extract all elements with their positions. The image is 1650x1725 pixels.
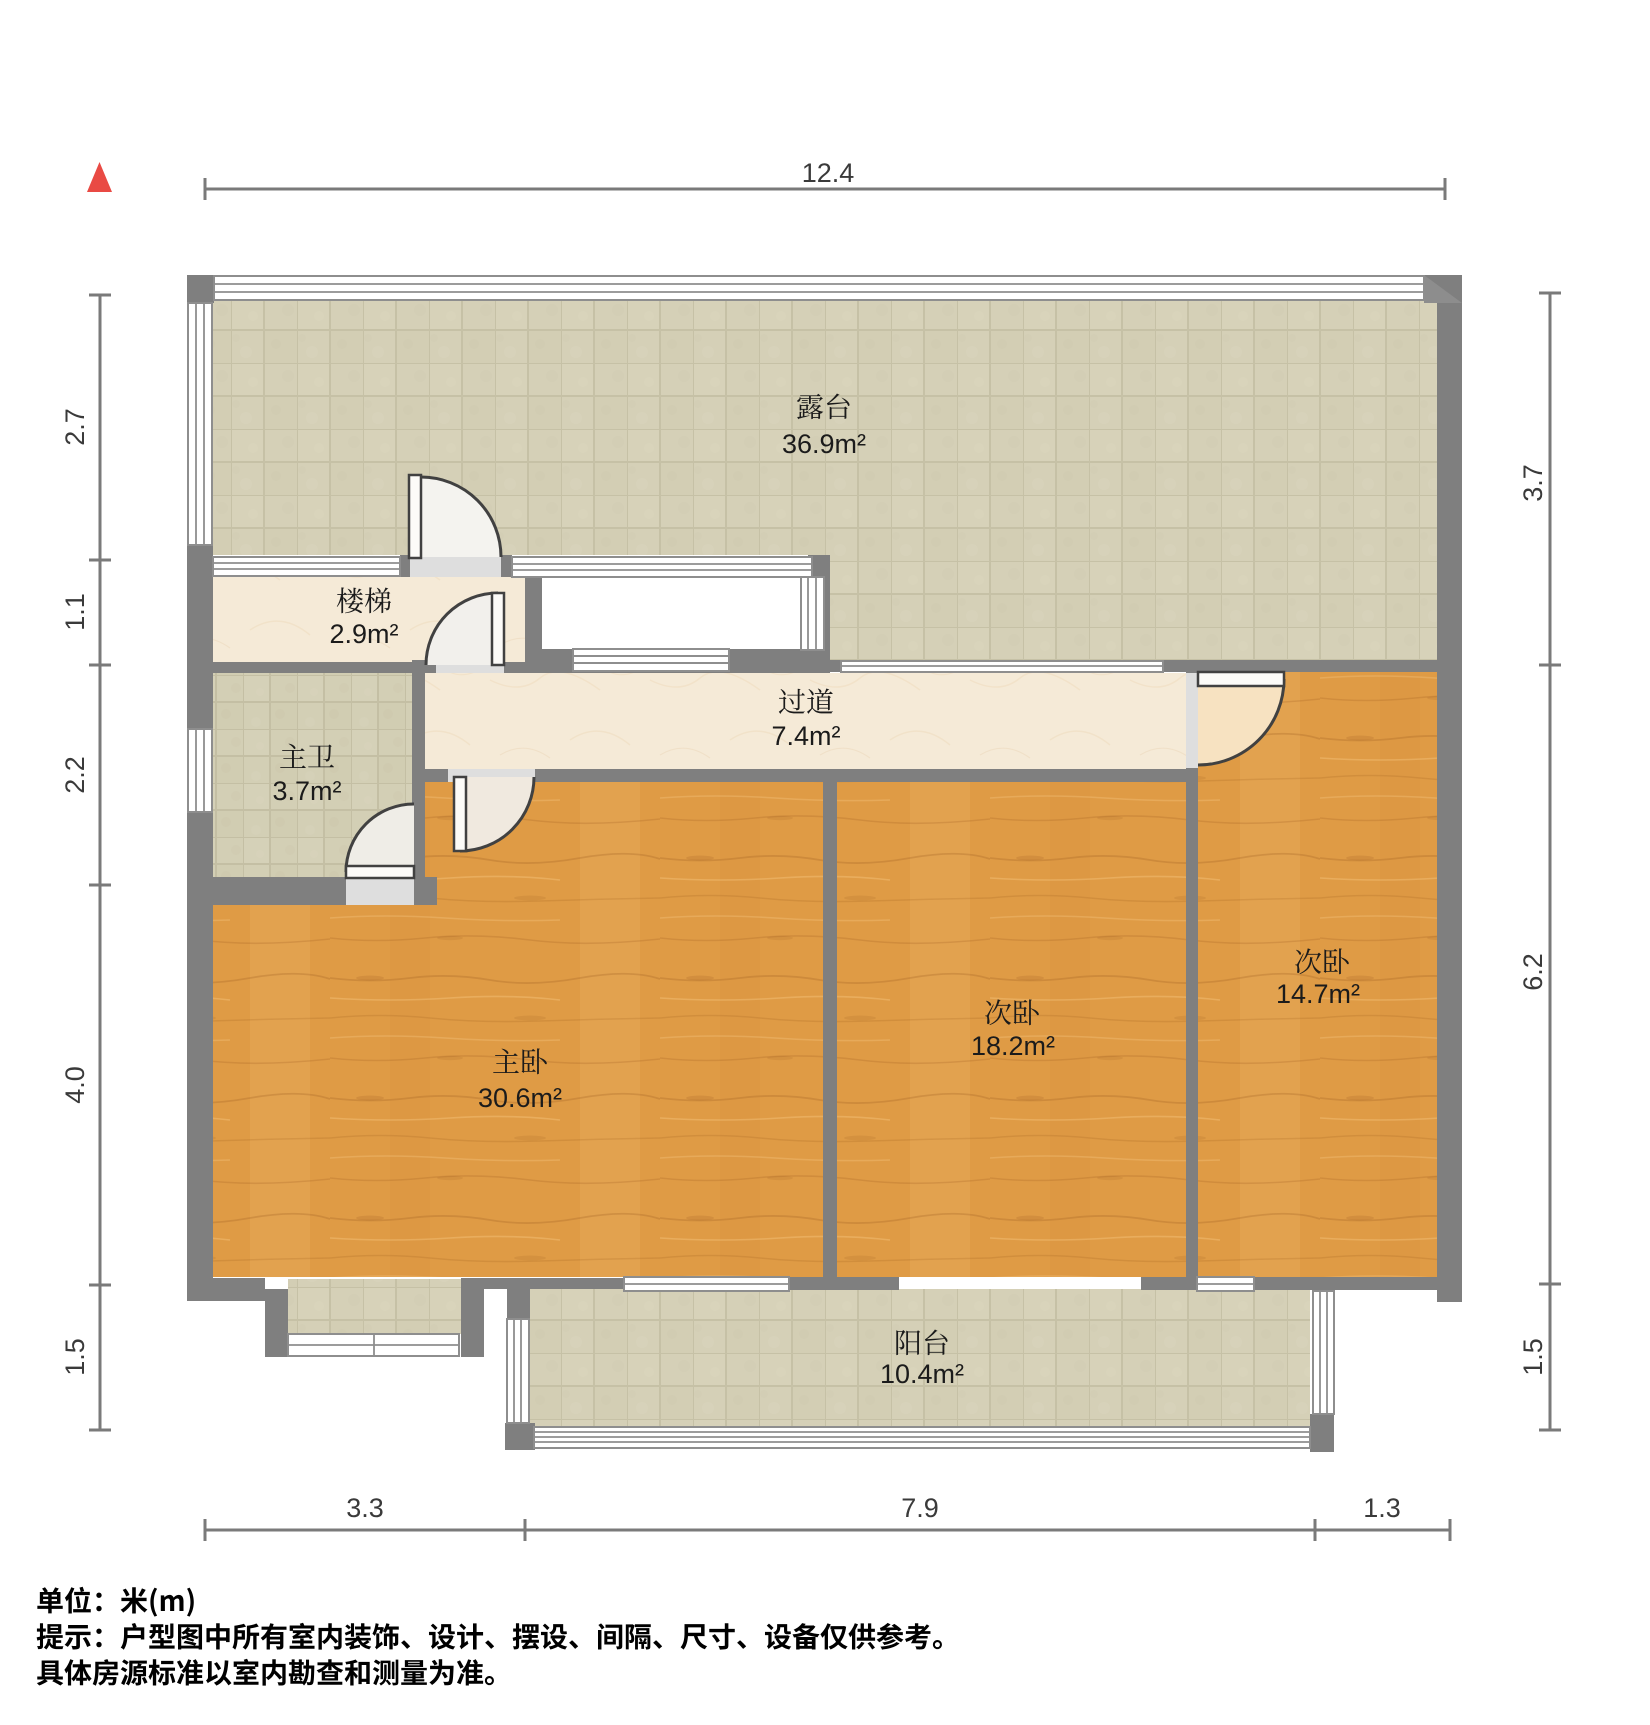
svg-text:12.4: 12.4 <box>802 158 855 188</box>
svg-text:2.9m²: 2.9m² <box>329 619 398 649</box>
svg-text:1.5: 1.5 <box>1518 1338 1548 1376</box>
svg-text:3.7m²: 3.7m² <box>272 776 341 806</box>
svg-text:1.5: 1.5 <box>60 1338 90 1376</box>
svg-text:6.2: 6.2 <box>1518 953 1548 991</box>
svg-text:3.7: 3.7 <box>1518 464 1548 502</box>
svg-text:1.1: 1.1 <box>60 593 90 631</box>
svg-text:36.9m²: 36.9m² <box>782 429 866 459</box>
svg-text:2.2: 2.2 <box>60 756 90 794</box>
svg-text:1.3: 1.3 <box>1363 1493 1401 1523</box>
svg-text:2.7: 2.7 <box>60 408 90 446</box>
svg-text:3.3: 3.3 <box>346 1493 384 1523</box>
svg-text:7.9: 7.9 <box>901 1493 939 1523</box>
svg-text:30.6m²: 30.6m² <box>478 1083 562 1113</box>
svg-text:14.7m²: 14.7m² <box>1276 979 1360 1009</box>
svg-text:7.4m²: 7.4m² <box>771 721 840 751</box>
svg-text:4.0: 4.0 <box>60 1066 90 1104</box>
svg-text:10.4m²: 10.4m² <box>880 1359 964 1389</box>
svg-text:18.2m²: 18.2m² <box>971 1031 1055 1061</box>
